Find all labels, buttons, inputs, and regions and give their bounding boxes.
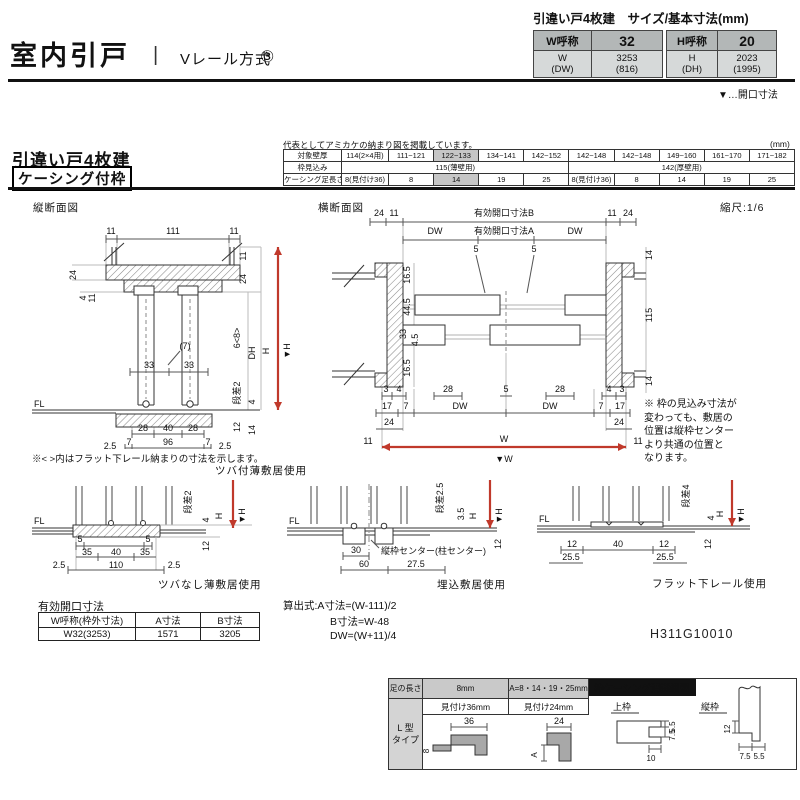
dim-label: 4 bbox=[201, 517, 211, 522]
opening-a-label: 有効開口寸法A bbox=[474, 225, 534, 236]
h-sub-label-1: H bbox=[667, 53, 717, 64]
w-sub-label-1: W bbox=[534, 53, 591, 64]
wall-row-3: ケーシング足長さ 8(見付け36) 8 14 19 25 8(見付け36) 8 … bbox=[284, 174, 795, 186]
dim-label: DW bbox=[428, 226, 443, 236]
jamb-center-label: 縦枠センター(柱センター) bbox=[381, 545, 486, 556]
dim-label: 30 bbox=[351, 545, 361, 555]
dim-label: 24 bbox=[384, 417, 394, 427]
dim-label: 4.5 bbox=[410, 334, 420, 347]
roller bbox=[381, 523, 387, 529]
dim-label: 14 bbox=[644, 250, 654, 260]
wall-lines bbox=[332, 265, 646, 385]
dim-label: 段差4 bbox=[680, 484, 691, 507]
cell: 114(2×4用) bbox=[342, 150, 389, 162]
title-separator: | bbox=[153, 44, 158, 67]
cell: 19 bbox=[479, 174, 524, 186]
dim-label: 段差2 bbox=[231, 381, 242, 404]
dim-label: 14 bbox=[247, 425, 257, 435]
fl-label: FL bbox=[539, 514, 550, 524]
casing-profile-24: 24 A bbox=[509, 715, 589, 769]
dim-label: 7.5 bbox=[668, 729, 677, 741]
row1-label: 対象壁厚 bbox=[284, 150, 342, 162]
dim-label: ▼H bbox=[237, 508, 247, 523]
cell: 142~148 bbox=[614, 150, 659, 162]
dim-label: 111 bbox=[166, 226, 180, 236]
dim-label: 24 bbox=[554, 716, 564, 726]
dim-label: H bbox=[261, 348, 271, 355]
row2-label: 枠見込み bbox=[284, 162, 342, 174]
dim-label: 28 bbox=[188, 423, 198, 433]
roller bbox=[109, 521, 114, 526]
dim-label: 4 bbox=[606, 384, 611, 394]
track-groove bbox=[178, 286, 198, 295]
formula-line: DW=(W+11)/4 bbox=[330, 630, 396, 642]
document-code: H311G10010 bbox=[650, 627, 733, 641]
page-title: 室内引戸 bbox=[10, 34, 130, 73]
type-label-1: L 型 bbox=[392, 722, 419, 734]
header-rule bbox=[8, 79, 795, 82]
door-bottom-lines bbox=[76, 486, 172, 525]
flat-rail bbox=[591, 522, 663, 527]
col-header: B寸法 bbox=[201, 613, 260, 628]
side-frame-profile bbox=[739, 686, 760, 741]
dim-label: 110 bbox=[109, 560, 123, 570]
dim-label: (7) bbox=[180, 341, 191, 351]
hs-note-line: より共通の位置と bbox=[644, 439, 796, 453]
hs-note: ※ 枠の見込み寸法が 変わっても、敷居の 位置は縦枠センター より共通の位置と … bbox=[644, 398, 796, 466]
red-arrow-down bbox=[229, 520, 237, 528]
cell: 134~141 bbox=[479, 150, 524, 162]
dim-label: DH bbox=[247, 347, 257, 360]
dim-label: 40 bbox=[613, 539, 623, 549]
fl-label: FL bbox=[289, 516, 300, 526]
dim-label: 60 bbox=[359, 559, 369, 569]
dim-label: 4 bbox=[396, 384, 401, 394]
type-label-2: タイプ bbox=[392, 734, 419, 746]
dim-label: 35 bbox=[82, 547, 92, 557]
dim-label: 11 bbox=[363, 436, 372, 446]
dim-label: 12 bbox=[567, 539, 577, 549]
dim-label: 4 bbox=[247, 399, 257, 404]
w-sub-label: W (DW) bbox=[534, 51, 592, 78]
type-label-cell: L 型 タイプ bbox=[389, 699, 423, 769]
detail-drawing-thin-sill: FL 段差2 4 H ▼H 12 5 5 35 40 35 2.5 110 2.… bbox=[28, 478, 293, 576]
vertical-section-drawing: 11 111 11 24 4 11 11 24 6<8> DH H ▼H 段差2… bbox=[28, 203, 313, 449]
detail-drawing-embedded-sill: FL 30 60 27.5 縦枠センター(柱センター) 段差2.5 3.5 H … bbox=[285, 478, 535, 576]
red-arrow-down bbox=[728, 518, 736, 526]
hs-note-line: 変わっても、敷居の bbox=[644, 412, 796, 426]
dim-label: 5 bbox=[473, 244, 478, 254]
h-label: H呼称 bbox=[667, 31, 718, 51]
size-table-title: 引違い戸4枚建 サイズ/基本寸法(mm) bbox=[533, 8, 749, 27]
cell: 142~148 bbox=[569, 150, 614, 162]
cell: 25 bbox=[524, 174, 569, 186]
method-label: Vレール方式 bbox=[180, 48, 271, 69]
dim-label: 11 bbox=[238, 251, 248, 260]
dim-label: 11 bbox=[87, 293, 97, 302]
dim-label: A bbox=[530, 752, 539, 758]
dim-label: 17 bbox=[615, 401, 625, 411]
cell-group1: 115(薄壁用) bbox=[342, 162, 569, 174]
h-sub-label-2: (DH) bbox=[667, 64, 717, 75]
dim-label: 11 bbox=[389, 208, 398, 218]
dim-label: W bbox=[500, 434, 509, 444]
dim-label: 25.5 bbox=[656, 552, 674, 562]
red-arrow-up bbox=[274, 247, 282, 255]
door-bottom-lines bbox=[573, 486, 669, 521]
wall-lines bbox=[104, 243, 242, 265]
w-label: W呼称 bbox=[534, 31, 592, 51]
hs-note-line: なります。 bbox=[644, 452, 796, 466]
dim-label: 25.5 bbox=[562, 552, 580, 562]
groove-detail-box: 枠ケーシング溝詳細図 上枠 5.5 7.5 10 縦枠 bbox=[589, 679, 794, 767]
dim-label: 24 bbox=[374, 208, 384, 218]
dim-label: H bbox=[214, 513, 224, 520]
dim-label: DW bbox=[453, 401, 468, 411]
cell: 171~182 bbox=[749, 150, 794, 162]
cell: 142~152 bbox=[524, 150, 569, 162]
dim-label: 16.5 bbox=[402, 359, 412, 377]
dim-label: 3 bbox=[619, 384, 624, 394]
d2-caption: 埋込敷居使用 bbox=[437, 577, 506, 592]
cell: 25 bbox=[749, 174, 794, 186]
cell: 8(見付け36) bbox=[342, 174, 389, 186]
cell: 8(見付け36) bbox=[569, 174, 614, 186]
dim-label: 11 bbox=[633, 436, 642, 446]
dim-label: ▼W bbox=[495, 454, 513, 464]
dim-label: 17 bbox=[382, 401, 392, 411]
dim-label: 10 bbox=[647, 754, 656, 763]
vs-caption: ツバ付薄敷居使用 bbox=[215, 463, 307, 478]
leg-length-panel: 足の長さ 8mm A=8・14・19・25mm L 型 タイプ 見付け36mm … bbox=[388, 678, 797, 770]
dim-label: 5 bbox=[77, 534, 82, 544]
dim-label: 24 bbox=[623, 208, 633, 218]
dim-label: 5 bbox=[503, 384, 508, 394]
w-sub-label-2: (DW) bbox=[534, 64, 591, 75]
red-arrow-down bbox=[274, 402, 282, 410]
track-groove bbox=[134, 286, 154, 295]
w-sub-value: 3253 (816) bbox=[592, 51, 663, 78]
wall-row-2: 枠見込み 115(薄壁用) 142(厚壁用) bbox=[284, 162, 795, 174]
wall-thickness-table: 対象壁厚 114(2×4用) 111~121 122~133 134~141 1… bbox=[283, 149, 795, 186]
dim-label: ▼H bbox=[736, 508, 746, 523]
cell: W32(3253) bbox=[39, 628, 136, 641]
cell-group2: 142(厚壁用) bbox=[569, 162, 795, 174]
opening-b-label: 有効開口寸法B bbox=[474, 207, 534, 218]
dim-label: 28 bbox=[138, 423, 148, 433]
dim-label: 7 bbox=[126, 437, 131, 447]
cell: 8 bbox=[389, 174, 434, 186]
cell: 19 bbox=[704, 174, 749, 186]
dim-label: 7 bbox=[403, 401, 408, 411]
l-profile bbox=[547, 733, 571, 761]
w-sub-value-1: 3253 bbox=[592, 53, 662, 64]
dim-label: 40 bbox=[163, 423, 173, 433]
h-size-table: H呼称 20 H (DH) 2023 (1995) bbox=[666, 30, 777, 78]
dim-label: 12 bbox=[232, 422, 242, 432]
col2-subheader: 見付け36mm bbox=[423, 699, 509, 715]
dim-label: 8 bbox=[423, 748, 431, 753]
cell: 14 bbox=[659, 174, 704, 186]
dim-label: 12 bbox=[723, 724, 732, 733]
dim-label: 24 bbox=[238, 274, 248, 284]
cell: 8 bbox=[614, 174, 659, 186]
dim-label: 2.5 bbox=[53, 560, 66, 570]
h-sub-label: H (DH) bbox=[667, 51, 718, 78]
h-sub-value: 2023 (1995) bbox=[718, 51, 777, 78]
dim-label: 2.5 bbox=[104, 441, 117, 449]
dim-label: 28 bbox=[555, 384, 565, 394]
dim-label: 12 bbox=[703, 539, 713, 549]
dim-label: 2.5 bbox=[168, 560, 181, 570]
method-number: ③ bbox=[260, 47, 274, 67]
cell-shaded: 122~133 bbox=[434, 150, 479, 162]
red-arrow-down bbox=[486, 520, 494, 528]
w-value: 32 bbox=[592, 31, 663, 51]
door-panels bbox=[403, 295, 606, 345]
cell: 111~121 bbox=[389, 150, 434, 162]
dim-label: 28 bbox=[443, 384, 453, 394]
dim-label: 24 bbox=[614, 417, 624, 427]
cell: 161~170 bbox=[704, 150, 749, 162]
dim-label: 12 bbox=[493, 539, 503, 549]
col-header: A寸法 bbox=[136, 613, 201, 628]
cell: 3205 bbox=[201, 628, 260, 641]
dim-label: 7.5 bbox=[739, 752, 751, 761]
wall-row-1: 対象壁厚 114(2×4用) 111~121 122~133 134~141 1… bbox=[284, 150, 795, 162]
dim-label: 5 bbox=[531, 244, 536, 254]
d3-caption: フラット下レール使用 bbox=[652, 576, 767, 591]
col3-subheader: 見付け24mm bbox=[509, 699, 589, 715]
dim-label: 段差2.5 bbox=[434, 483, 445, 514]
col2-header: 8mm bbox=[423, 679, 509, 699]
opening-note: ▼…開口寸法 bbox=[718, 86, 778, 101]
dim-label: 6<8> bbox=[232, 328, 242, 349]
dim-label: 115 bbox=[644, 308, 654, 322]
embedded-track bbox=[343, 528, 365, 544]
left-jamb bbox=[375, 263, 403, 387]
dim-label: 96 bbox=[163, 437, 173, 447]
dim-label: DW bbox=[543, 401, 558, 411]
cell: 149~160 bbox=[659, 150, 704, 162]
door-panels bbox=[138, 295, 198, 407]
dim-label: 33 bbox=[184, 360, 194, 370]
door-bottom-lines bbox=[311, 486, 407, 524]
dim-label: 44.5 bbox=[402, 298, 412, 316]
h-sub-value-1: 2023 bbox=[718, 53, 776, 64]
side-frame-label: 縦枠 bbox=[701, 701, 719, 712]
dim-label: 段差2 bbox=[182, 490, 193, 513]
hs-note-line: 位置は縦枠センター bbox=[644, 425, 796, 439]
h-value: 20 bbox=[718, 31, 777, 51]
col3-header: A=8・14・19・25mm bbox=[509, 679, 589, 699]
leg-length-header: 足の長さ bbox=[389, 679, 423, 699]
h-sub-value-2: (1995) bbox=[718, 64, 776, 75]
formula-line: B寸法=W-48 bbox=[330, 614, 389, 629]
d1-caption: ツバなし薄敷居使用 bbox=[158, 577, 262, 592]
dim-label: 35 bbox=[140, 547, 150, 557]
fl-label: FL bbox=[34, 399, 45, 409]
opening-table: W呼称(枠外寸法) A寸法 B寸法 W32(3253) 1571 3205 bbox=[38, 612, 260, 641]
dim-label: 7 bbox=[205, 437, 210, 447]
col-header: W呼称(枠外寸法) bbox=[39, 613, 136, 628]
dim-label: 11 bbox=[607, 208, 616, 218]
dim-label: H bbox=[715, 511, 725, 518]
l-profile bbox=[451, 735, 487, 755]
dim-label: 27.5 bbox=[407, 559, 425, 569]
casing-profile-36: 36 8 bbox=[423, 715, 509, 769]
dim-label: 11 bbox=[106, 226, 115, 236]
formula-line: 算出式:A寸法=(W-111)/2 bbox=[283, 598, 396, 613]
upper-frame-profile bbox=[617, 721, 661, 743]
dim-label: 40 bbox=[111, 547, 121, 557]
w-sub-value-2: (816) bbox=[592, 64, 662, 75]
upper-frame-label: 上枠 bbox=[613, 701, 631, 712]
dim-label: 3 bbox=[383, 384, 388, 394]
hs-note-line: ※ 枠の見込み寸法が bbox=[644, 398, 796, 412]
dim-label: 5 bbox=[145, 534, 150, 544]
dim-label: 2.5 bbox=[219, 441, 232, 449]
dim-label: 5.5 bbox=[753, 752, 765, 761]
row3-label: ケーシング足長さ bbox=[284, 174, 342, 186]
dim-label: 16.5 bbox=[402, 266, 412, 284]
w-size-table: W呼称 32 W (DW) 3253 (816) bbox=[533, 30, 663, 78]
catalog-page: 室内引戸 | Vレール方式 ③ 引違い戸4枚建 サイズ/基本寸法(mm) W呼称… bbox=[0, 0, 800, 800]
dim-label: 3.5 bbox=[456, 508, 466, 521]
detail-title: 枠ケーシング溝詳細図 bbox=[593, 683, 689, 695]
dim-label: 33 bbox=[398, 329, 408, 339]
unit-label: (mm) bbox=[770, 139, 790, 149]
red-arrow-right bbox=[618, 443, 626, 451]
dim-label: 12 bbox=[659, 539, 669, 549]
embedded-track bbox=[375, 528, 393, 544]
dim-label: 24 bbox=[68, 270, 78, 280]
dim-label: 36 bbox=[464, 716, 474, 726]
dim-label: 12 bbox=[201, 541, 211, 551]
detail-drawing-flat-rail: FL 12 40 12 25.5 25.5 段差4 4 H ▼H 12 bbox=[535, 478, 797, 576]
fl-label: FL bbox=[34, 516, 45, 526]
dim-label: 33 bbox=[144, 360, 154, 370]
dim-label: DW bbox=[568, 226, 583, 236]
dim-label: 14 bbox=[644, 376, 654, 386]
dim-label: ▼H bbox=[282, 343, 292, 358]
right-jamb bbox=[606, 263, 634, 387]
dim-label: H bbox=[468, 513, 478, 520]
roller bbox=[141, 521, 146, 526]
red-arrow-left bbox=[382, 443, 390, 451]
head-casing-hatched bbox=[106, 265, 240, 280]
foot bbox=[433, 745, 451, 751]
cell: 1571 bbox=[136, 628, 201, 641]
groove-detail-drawing: 枠ケーシング溝詳細図 上枠 5.5 7.5 10 縦枠 bbox=[589, 679, 794, 767]
dim-label: 7 bbox=[598, 401, 603, 411]
dim-label: ▼H bbox=[494, 508, 504, 523]
roller bbox=[351, 523, 357, 529]
dim-label: 11 bbox=[229, 226, 238, 236]
cell-shaded: 14 bbox=[434, 174, 479, 186]
section-rule bbox=[8, 187, 795, 190]
